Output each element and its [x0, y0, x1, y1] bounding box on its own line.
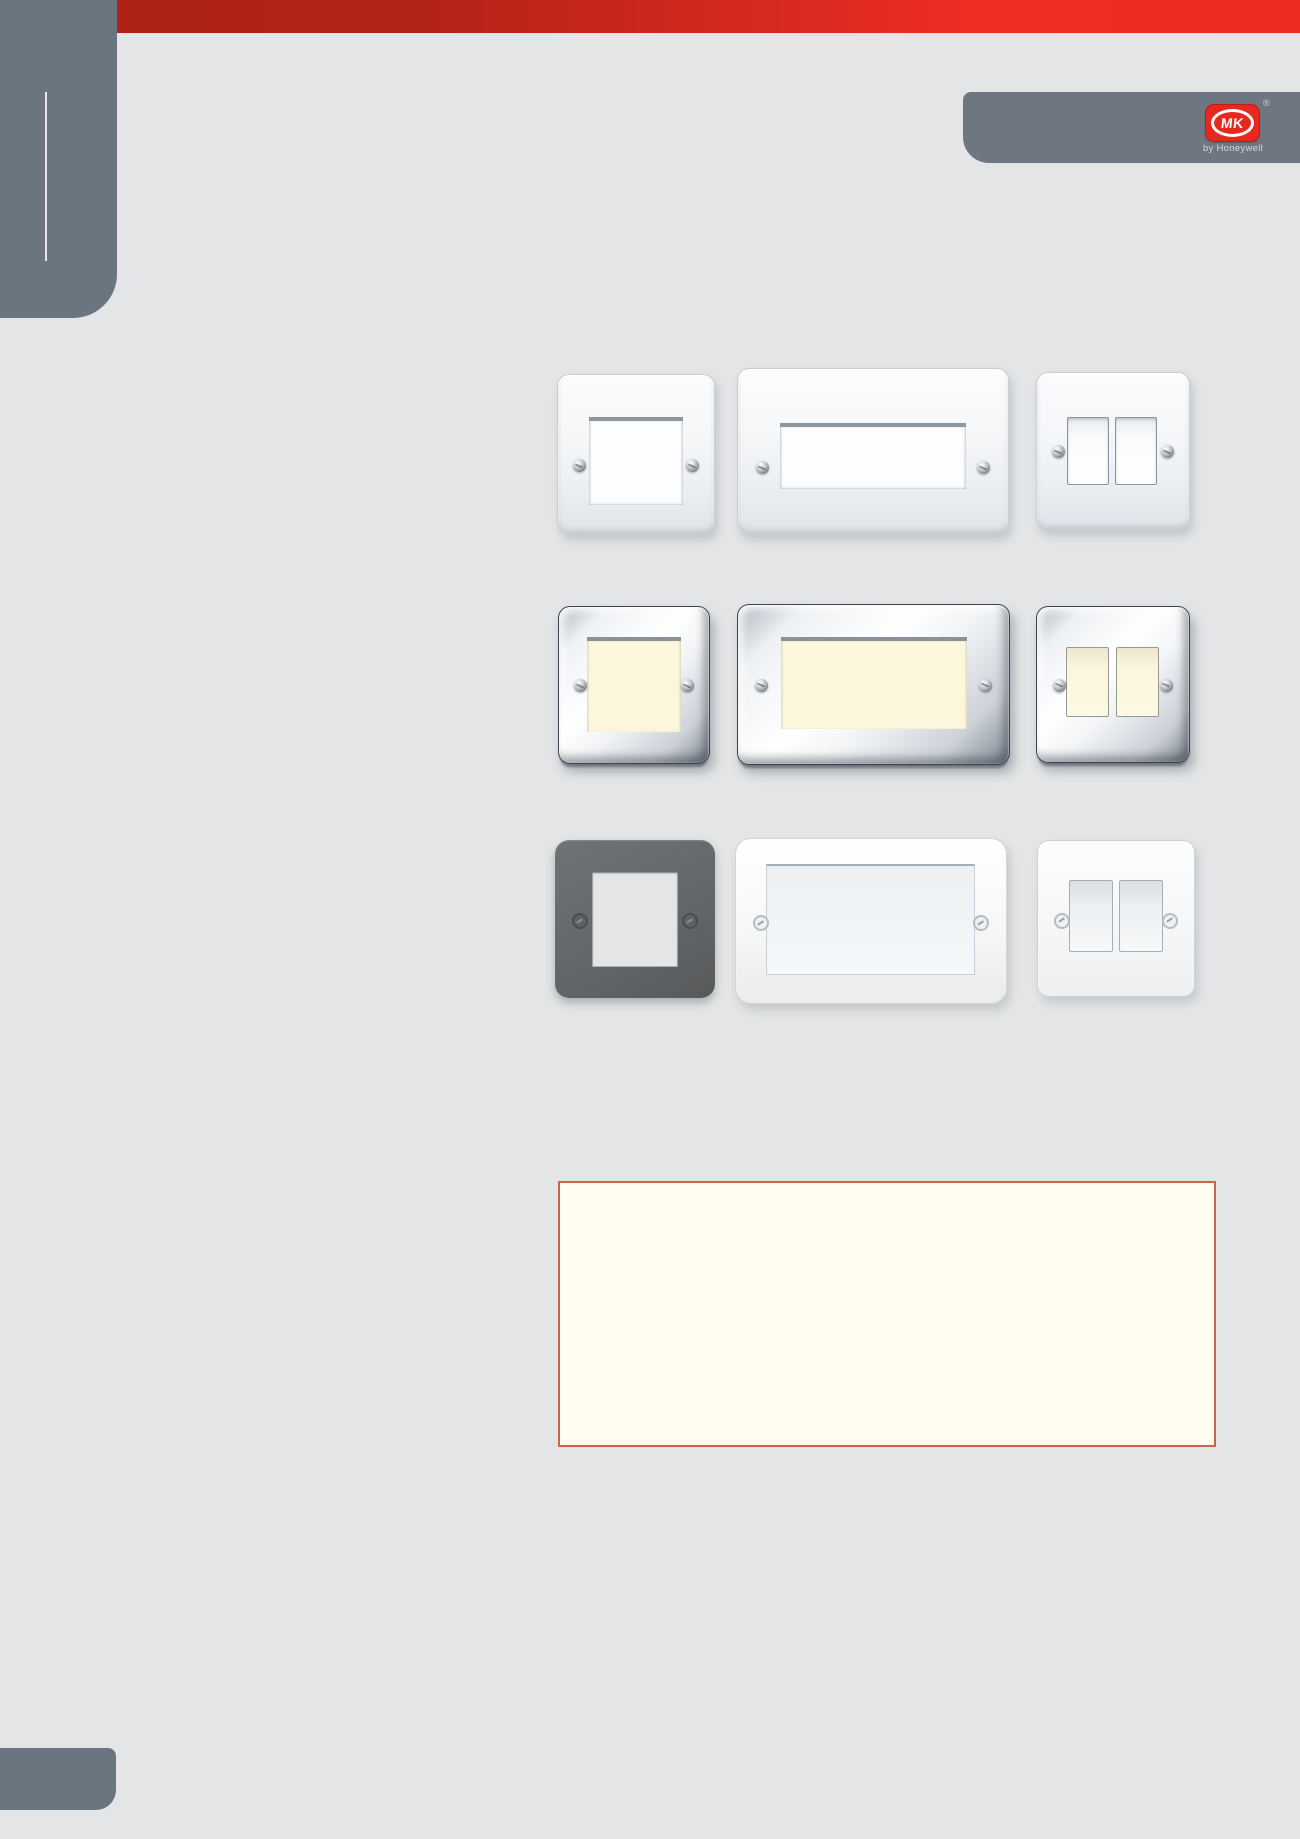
rocker-switch	[1119, 880, 1163, 952]
rocker-switch	[1115, 417, 1157, 485]
note-box	[558, 1181, 1216, 1447]
plate-chrome-2gang-switch	[1036, 606, 1190, 763]
screw-icon	[686, 459, 699, 472]
aperture	[589, 417, 683, 505]
screw-icon	[1053, 679, 1066, 692]
plate-white-1gang-euro-frontplate	[557, 374, 715, 534]
rocker-switch	[1066, 647, 1109, 717]
screw-icon	[573, 459, 586, 472]
brand-byline: by Honeywell	[1185, 143, 1281, 154]
mk-logo-text: MK	[1220, 116, 1244, 130]
rocker-switch	[1116, 647, 1159, 717]
plate-white-2gang-euro-frontplate	[737, 368, 1009, 534]
screw-icon	[572, 913, 588, 929]
screw-icon	[574, 679, 587, 692]
aperture	[781, 637, 967, 729]
mk-logo: MK	[1205, 104, 1260, 142]
plate-white-metal-2gang-euro-frontplate	[735, 838, 1007, 1004]
footer-tab	[0, 1748, 116, 1810]
screw-icon	[755, 679, 768, 692]
rocker-switch	[1069, 880, 1113, 952]
aperture	[587, 637, 681, 732]
screw-icon	[1162, 913, 1178, 929]
rocker-switch	[1067, 417, 1109, 485]
screw-icon	[1054, 913, 1070, 929]
screw-icon	[979, 679, 992, 692]
aperture	[766, 864, 975, 975]
sidebar-divider-line	[45, 92, 47, 261]
mk-logo-oval: MK	[1211, 109, 1254, 137]
screw-icon	[977, 461, 990, 474]
plate-white-2gang-switch	[1036, 372, 1190, 530]
screw-icon	[973, 915, 989, 931]
plate-chrome-1gang-euro-frontplate	[558, 606, 710, 764]
screw-icon	[1161, 445, 1174, 458]
aperture	[780, 423, 966, 489]
brand-tab: MK ® by Honeywell	[963, 92, 1300, 163]
plate-graphite-1gang-frontplate	[555, 840, 715, 998]
screw-icon	[753, 915, 769, 931]
page-canvas: MK ® by Honeywell	[0, 0, 1300, 1839]
screw-icon	[681, 679, 694, 692]
header-red-bar	[115, 0, 1300, 33]
screw-icon	[1160, 679, 1173, 692]
aperture	[592, 872, 678, 967]
registered-trademark-icon: ®	[1263, 98, 1270, 108]
screw-icon	[682, 913, 698, 929]
left-tab	[0, 0, 117, 318]
screw-icon	[1052, 445, 1065, 458]
plate-chrome-2gang-euro-frontplate	[737, 604, 1010, 765]
screw-icon	[756, 461, 769, 474]
plate-white-2gang-switch-slim	[1037, 840, 1195, 997]
